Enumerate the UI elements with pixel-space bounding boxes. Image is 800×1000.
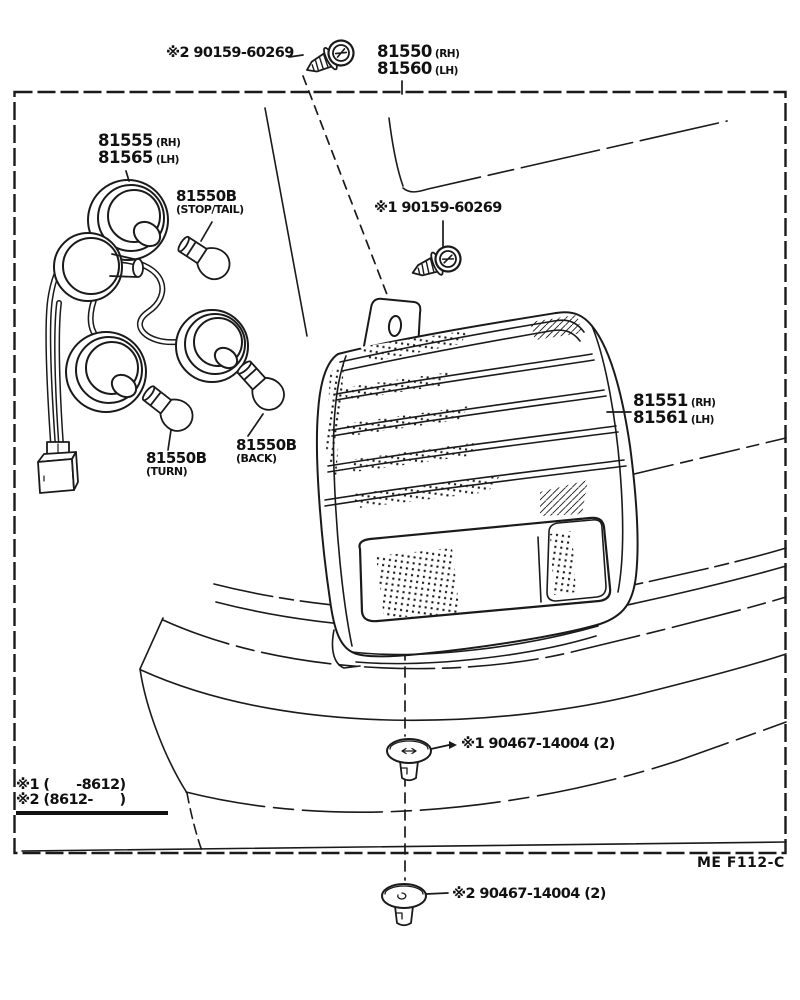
socket-bottom [66,332,146,412]
screw-upper-icon [302,36,358,82]
footnote-block: ※1 ( -8612) ※2 (8612- ) [16,778,168,815]
bulb-stop-tail-icon [173,230,235,285]
tail-lamp-lens [317,299,638,668]
clip-upper-icon [387,739,431,780]
label-lens-body: 81551(RH) 81561(LH) [633,393,715,427]
label-clip-lower: ※2 90467-14004 (2) [452,887,606,902]
label-lamp-assembly: 81550(RH) 81560(LH) [377,44,459,78]
label-bulb-turn: 81550B (TURN) [146,451,207,478]
bulb-turn-icon [137,379,199,437]
label-clip-upper: ※1 90467-14004 (2) [461,737,615,752]
footnote-2: ※2 (8612- ) [16,793,168,808]
parts-diagram-page: ※2 90159-60269 81550(RH) 81560(LH) 81555… [0,0,800,1000]
label-bulb-stop-tail: 81550B (STOP/TAIL) [176,189,244,216]
label-bulb-back: 81550B (BACK) [236,438,297,465]
label-screw-lower: ※1 90159-60269 [374,201,502,216]
harness-connector [38,442,78,493]
footnote-1: ※1 ( -8612) [16,778,168,793]
label-socket-wire: 81555(RH) 81565(LH) [98,133,180,167]
clips [382,739,431,925]
diagram-code: ME F112-C [697,856,785,870]
screw-lower-icon [408,243,464,286]
clip-lower-icon [382,884,426,925]
arrowhead [449,741,457,749]
label-screw-upper: ※2 90159-60269 [166,46,294,61]
